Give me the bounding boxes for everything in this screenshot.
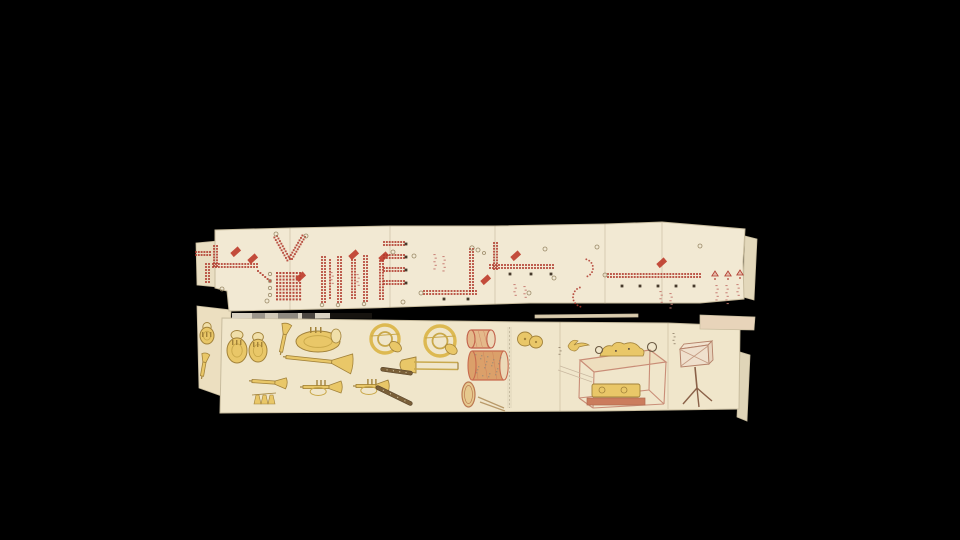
photo-viewer-background [0,0,960,540]
fragment-edge-line [535,314,638,318]
grayscale-segment [252,313,265,319]
drum-icon [468,351,508,380]
grayscale-segment [315,313,330,319]
grayscale-segment [298,313,302,319]
marker-mark [693,285,696,288]
marker-mark [405,282,408,285]
marker-mark [530,273,533,276]
marker-mark [467,298,470,301]
top-scroll-paper [215,222,745,311]
grayscale-segment [265,313,278,319]
marker-mark [639,285,642,288]
marker-mark [657,285,660,288]
grayscale-reference-strip [232,313,372,319]
marker-mark [621,285,624,288]
marker-mark [509,273,512,276]
smalldrum-icon [462,382,475,407]
marker-mark [405,256,408,259]
grayscale-segment [232,313,252,319]
marker-mark [443,298,446,301]
fragment-right-band [700,315,755,330]
grayscale-segment [278,313,298,319]
marker-mark [550,273,553,276]
top-scroll-sheet [215,222,745,311]
drum-icon [467,330,495,348]
grayscale-segment [330,313,372,319]
grayscale-segment [302,313,315,319]
marker-mark [405,243,408,246]
scroll-photograph [0,0,960,540]
marker-mark [675,285,678,288]
marker-mark [405,269,408,272]
